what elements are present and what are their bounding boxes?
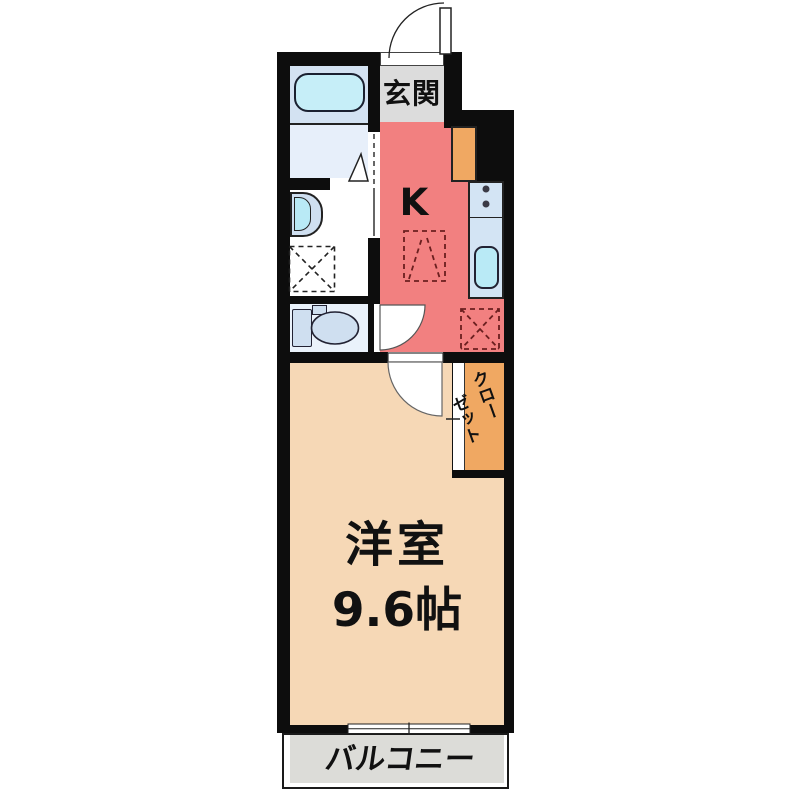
overhead-cupboard-symbol-icon — [404, 231, 445, 281]
sliding-window-icon — [348, 723, 470, 736]
entrance-door-swing-arc — [389, 3, 444, 58]
refrigerator-space-icon — [461, 309, 499, 349]
stove-burners-icon — [483, 186, 490, 208]
washing-machine-space-icon — [290, 247, 335, 292]
entrance-door-leaf-icon — [440, 8, 451, 54]
bath-door-swing-icon — [349, 154, 368, 181]
toilet-door-swing-icon — [380, 305, 425, 350]
toilet-bowl-icon — [312, 312, 359, 344]
genkan-label: 玄関 — [380, 76, 444, 112]
linework-layer — [0, 0, 800, 800]
living-room-size-label: 9.6帖 — [295, 580, 499, 640]
room-door-leaf-icon — [388, 353, 443, 362]
kitchen-label: K — [392, 184, 436, 220]
room-door-swing-icon — [388, 362, 442, 416]
floor-plan: 玄関 K 洋室 9.6帖 クロー ゼット バルコニー — [0, 0, 800, 800]
balcony-label: バルコニー — [297, 742, 502, 778]
living-room-label: 洋室 — [295, 516, 499, 574]
